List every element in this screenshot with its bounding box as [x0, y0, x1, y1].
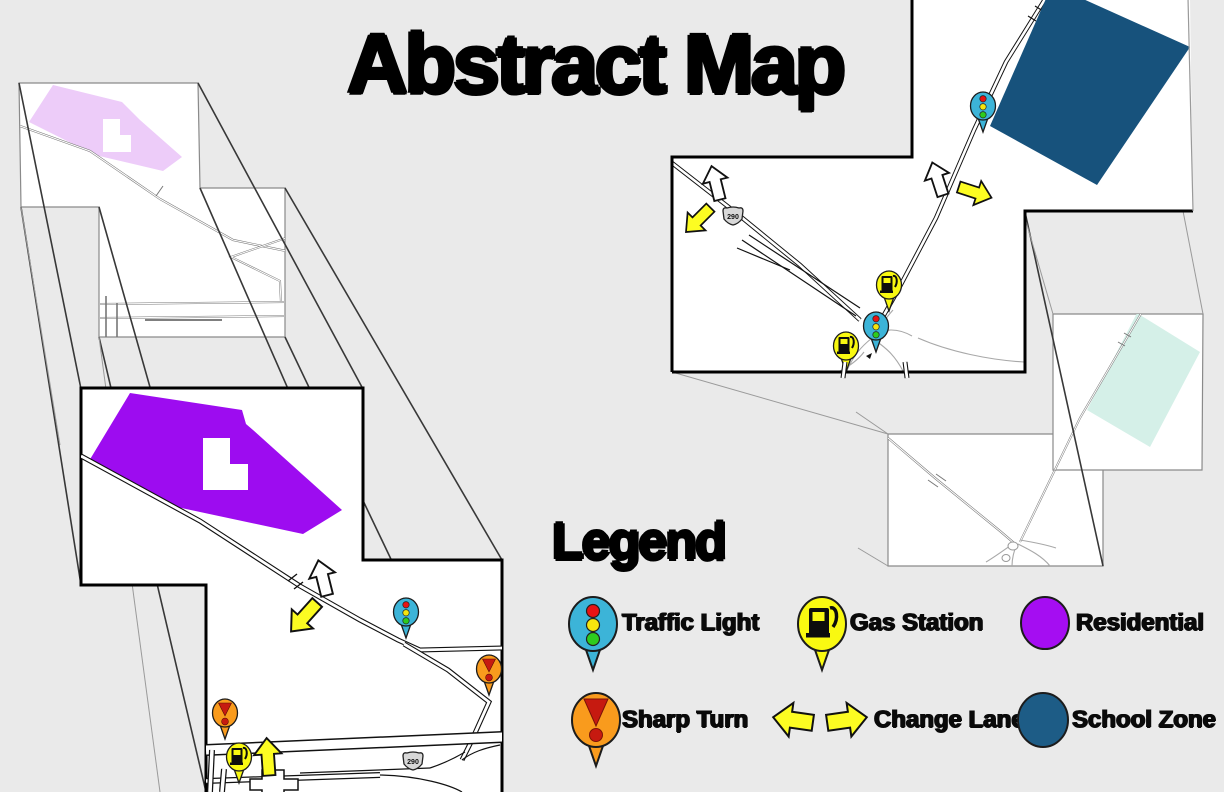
legend-label-change-lane: Change Lane: [874, 706, 1025, 734]
residential-icon: [1015, 593, 1075, 653]
legend-heading: Legend: [552, 512, 725, 572]
sharp-turn-icon: [566, 688, 626, 774]
legend-label-school-zone: School Zone: [1072, 706, 1216, 734]
svg-text:290: 290: [727, 214, 739, 221]
page-title: Abstract Map: [250, 16, 940, 113]
legend-label-residential: Residential: [1076, 609, 1204, 637]
svg-text:290: 290: [407, 759, 419, 766]
school-zone-icon: [1013, 690, 1073, 750]
legend-label-sharp-turn: Sharp Turn: [622, 706, 748, 734]
change-lane-icon: [765, 695, 875, 745]
traffic-light-icon: [563, 592, 623, 678]
gas-station-icon: [792, 592, 852, 678]
abstract-map-screen: 290: [0, 0, 1224, 792]
legend-label-traffic-light: Traffic Light: [622, 609, 759, 637]
legend-label-gas-station: Gas Station: [850, 609, 983, 637]
